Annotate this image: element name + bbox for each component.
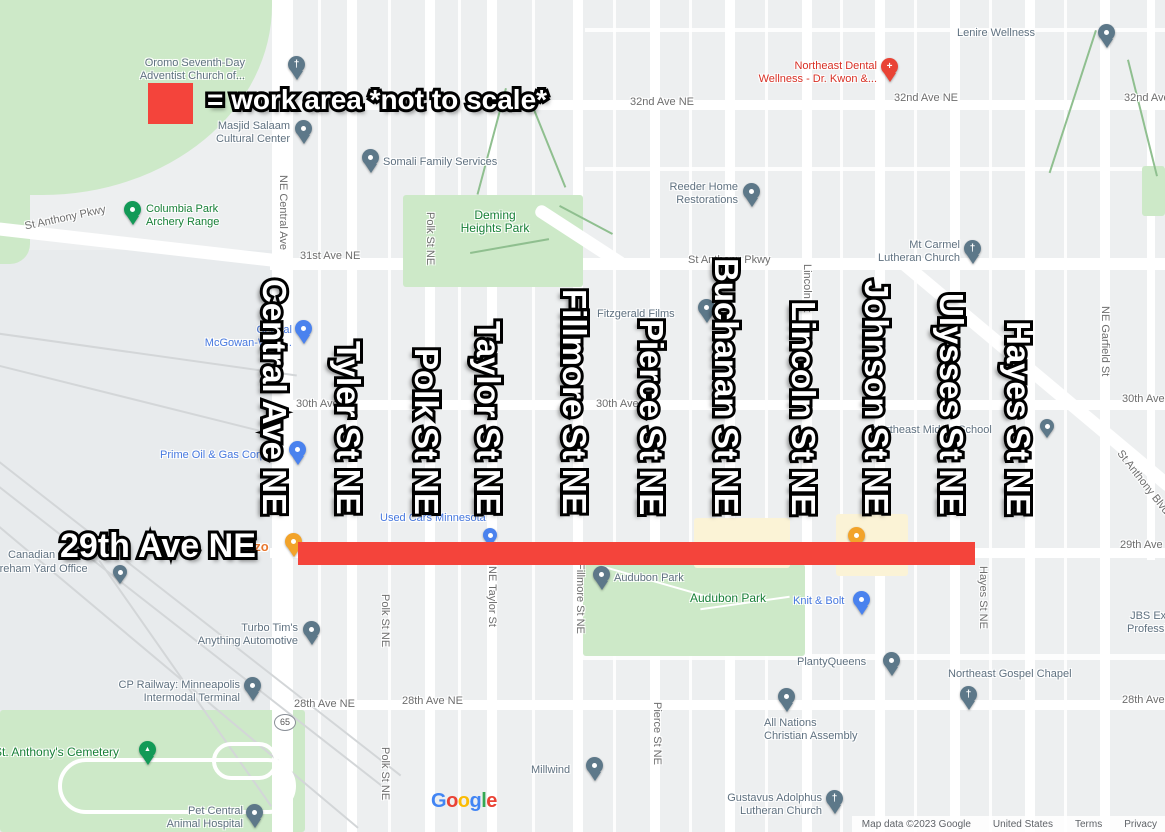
church-pin-icon[interactable]: † [960,686,977,710]
poi-knit-and-bolt[interactable]: Knit & Bolt [793,595,844,608]
poi-cp-railway[interactable]: CP Railway: MinneapolisIntermodal Termin… [119,679,240,705]
poi-audubon-park-area-label: Audubon Park [690,592,766,605]
poi-audubon-park-pin-label[interactable]: Audubon Park [614,572,684,585]
church-pin-icon[interactable]: † [288,56,305,80]
street-label-tyler-st-ne: Tyler St NE [329,341,367,515]
road-label-pkwy-west: St Anthony Pkwy [24,204,107,233]
place-pin-icon[interactable] [1098,24,1115,48]
terms-link[interactable]: Terms [1075,819,1102,830]
street-label-buchanan-st-ne: Buchanan St NE [707,258,745,515]
mosque-pin-icon[interactable] [295,120,312,144]
privacy-link[interactable]: Privacy [1124,819,1157,830]
road-label-28th-c: 28th Ave NE [1122,694,1165,706]
legend-text: = work area *not to scale* [207,84,547,116]
street-label-ne-taylor: NE Taylor St [486,566,498,627]
work-area-swatch [148,83,193,124]
poi-millwind[interactable]: Millwind [531,764,570,777]
church-pin-icon[interactable]: † [964,240,981,264]
map-canvas[interactable]: 32nd Ave NE 32nd Ave NE 32nd Ave NE 31st… [0,0,1165,832]
road-st-anthony-pkwy [578,258,1165,270]
street-label-ulysses-st-ne: Ulysses St NE [932,293,970,515]
street-label-pierce: Pierce St NE [651,702,663,765]
cemetery-tree-pin-icon[interactable]: ▲ [139,741,156,765]
road-label-28th-a: 28th Ave NE [294,698,355,710]
place-pin-icon[interactable] [778,688,795,712]
poi-northeast-dental[interactable]: Northeast DentalWellness - Dr. Kwon &... [759,60,877,86]
poi-prime-oil-gas[interactable]: Prime Oil & Gas Corp [160,449,266,462]
poi-all-nations[interactable]: All NationsChristian Assembly [764,717,858,743]
map-data-text: Map data ©2023 Google [862,819,971,830]
road-label-30th-c: 30th Ave NE [1122,393,1165,405]
poi-deming-heights-park: DemingHeights Park [455,209,535,235]
church-pin-icon[interactable]: † [826,790,843,814]
poi-masjid-salaam[interactable]: Masjid SalaamCultural Center [216,120,290,146]
alley [585,28,1165,32]
dental-pin-icon[interactable]: + [881,58,898,82]
park-pin-icon[interactable] [593,566,610,590]
road-label-32nd-c: 32nd Ave NE [1124,92,1165,104]
poi-yard-office-line1[interactable]: Canadian [8,549,55,562]
alley [585,167,1165,171]
poi-plantyqueens[interactable]: PlantyQueens [797,656,866,669]
street-label-ne-central: NE Central Ave [277,175,289,250]
place-pin-icon[interactable] [362,149,379,173]
street-label-polk-top: Polk St NE [424,212,436,265]
street-label-taylor-st-ne: Taylor St NE [469,321,507,515]
road-label-29th-b: 29th Ave NE [1120,539,1165,551]
shopping-pin-icon[interactable] [295,320,312,344]
poi-lenire-wellness[interactable]: Lenire Wellness [957,27,1035,40]
poi-reeder-home[interactable]: Reeder HomeRestorations [670,181,738,207]
park-patch-ne [1142,166,1165,216]
avenue-29th-label: 29th Ave NE [60,527,256,566]
cemetery-path-loop [212,742,278,780]
street-label-polk-bot: Polk St NE [379,747,391,800]
poi-northeast-gospel-chapel[interactable]: Northeast Gospel Chapel [948,668,1072,681]
street-label-polk-mid: Polk St NE [379,594,391,647]
street-label-polk-st-ne: Polk St NE [407,348,445,515]
poi-turbo-tims[interactable]: Turbo Tim'sAnything Automotive [198,622,298,648]
street-label-central-ave-ne: Central Ave NE [255,279,293,515]
poi-archery-range[interactable]: Columbia ParkArchery Range [146,203,219,229]
poi-st-anthonys-cemetery[interactable]: St. Anthony's Cemetery [0,746,119,759]
poi-mt-carmel[interactable]: Mt CarmelLutheran Church [878,239,960,265]
place-pin-icon[interactable] [244,677,261,701]
work-area-bar [298,542,975,565]
poi-oromo-church[interactable]: Oromo Seventh-DayAdventist Church of... [140,57,245,83]
route-65-shield: 65 [274,714,296,731]
place-pin-icon[interactable] [246,804,263,828]
poi-gustavus-adolphus[interactable]: Gustavus AdolphusLutheran Church [727,792,822,818]
place-pin-icon[interactable] [113,565,127,584]
poi-pet-central[interactable]: Pet CentralAnimal Hospital [167,805,243,831]
street-label-johnson-st-ne: Johnson St NE [857,280,895,515]
shopping-pin-icon[interactable] [853,591,870,615]
attribution-bar: Map data ©2023 Google United States Term… [852,816,1165,832]
auto-shop-pin-icon[interactable] [303,621,320,645]
park-pin-icon[interactable] [124,201,141,225]
road-label-32nd-a: 32nd Ave NE [630,96,694,108]
street-label-hayes: Hayes St NE [977,566,989,629]
road-label-28th-b: 28th Ave NE [402,695,463,707]
school-pin-icon[interactable] [1040,419,1054,438]
poi-jbs-exteriors[interactable]: JBS ExterProfession [1127,610,1165,636]
street-label-garfield: NE Garfield St [1099,306,1111,376]
street-label-pierce-st-ne: Pierce St NE [632,319,670,515]
street-label-hayes-st-ne: Hayes St NE [999,321,1037,515]
street-label-fillmore: Fillmore St NE [574,563,586,634]
road-label-32nd-b: 32nd Ave NE [894,92,958,104]
street-label-lincoln-st-ne: Lincoln St NE [784,301,822,516]
place-pin-icon[interactable] [586,757,603,781]
place-pin-icon[interactable] [743,183,760,207]
country-text: United States [993,819,1053,830]
road-label-31st: 31st Ave NE [300,250,360,262]
place-pin-icon[interactable] [883,652,900,676]
google-logo[interactable]: Google [431,790,497,813]
poi-somali-family-services[interactable]: Somali Family Services [383,156,497,169]
street-label-fillmore-st-ne: Fillmore St NE [555,289,593,515]
